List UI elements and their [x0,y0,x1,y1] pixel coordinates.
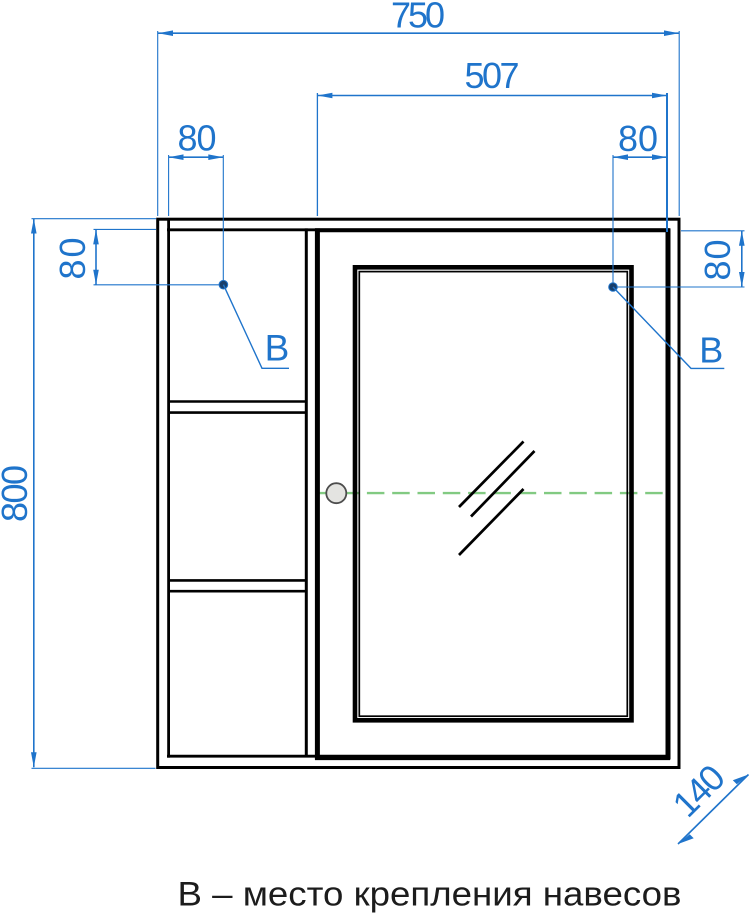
svg-text:B: B [699,330,723,371]
svg-text:800: 800 [0,465,35,522]
svg-text:80: 80 [697,240,738,281]
svg-text:B: B [265,328,290,369]
svg-text:80: 80 [52,238,93,280]
svg-text:В – место крепления навесов: В – место крепления навесов [178,876,682,914]
svg-text:507: 507 [465,55,520,96]
svg-text:80: 80 [618,118,658,159]
svg-text:750: 750 [391,0,445,36]
svg-text:80: 80 [178,118,217,159]
